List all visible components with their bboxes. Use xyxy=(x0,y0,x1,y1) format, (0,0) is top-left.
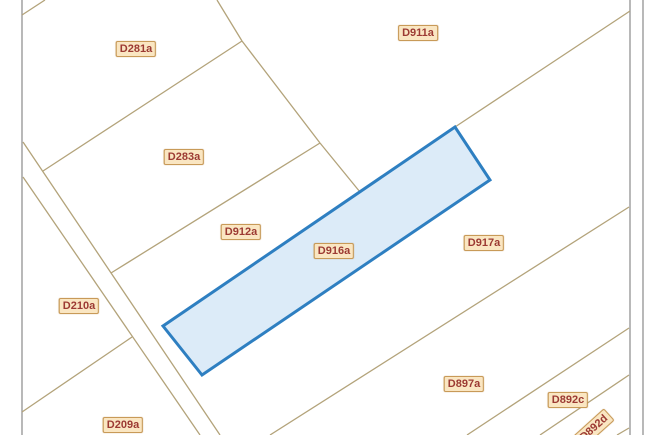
parcel-label-D916a[interactable]: D916a xyxy=(314,243,354,259)
parcel-label-D912a[interactable]: D912a xyxy=(221,224,261,240)
boundary-line xyxy=(43,41,242,171)
parcel-map-viewport[interactable]: D281aD911aD283aD912aD916aD917aD210aD897a… xyxy=(0,0,654,435)
parcel-label-D892c[interactable]: D892c xyxy=(548,392,588,408)
boundary-line xyxy=(22,0,45,15)
parcel-label-D281a[interactable]: D281a xyxy=(116,41,156,57)
parcel-label-D911a[interactable]: D911a xyxy=(398,25,438,41)
boundary-line xyxy=(242,41,320,143)
map-canvas xyxy=(0,0,654,435)
boundary-line xyxy=(455,11,630,127)
boundary-line xyxy=(320,143,360,192)
boundary-line xyxy=(617,428,629,435)
parcel-label-D210a[interactable]: D210a xyxy=(59,298,99,314)
boundary-line xyxy=(23,177,200,435)
parcel-label-D897a[interactable]: D897a xyxy=(444,376,484,392)
parcel-label-D283a[interactable]: D283a xyxy=(164,149,204,165)
parcel-label-D209a[interactable]: D209a xyxy=(103,417,143,433)
parcel-label-D917a[interactable]: D917a xyxy=(464,235,504,251)
boundary-line xyxy=(22,337,132,412)
boundary-line xyxy=(217,0,242,41)
